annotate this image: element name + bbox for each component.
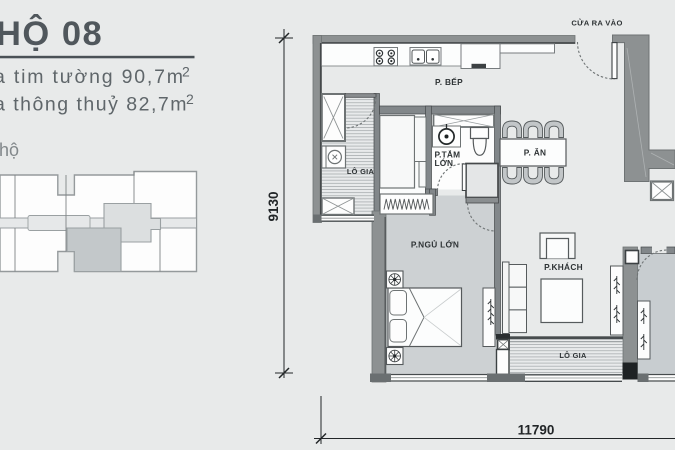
svg-text:9130: 9130 <box>266 191 281 221</box>
svg-text:LÔ GIA: LÔ GIA <box>559 351 587 360</box>
svg-text:P.NGỦ LỚN: P.NGỦ LỚN <box>411 239 459 250</box>
svg-text:2: 2 <box>186 91 194 107</box>
svg-text:CỬA RA VÀO: CỬA RA VÀO <box>571 19 622 28</box>
svg-text:P. ĂN: P. ĂN <box>524 148 547 158</box>
svg-text:11790: 11790 <box>518 423 555 438</box>
svg-text:HỘ 08: HỘ 08 <box>0 13 103 53</box>
svg-text:a thông thuỷ 82,7m: a thông thuỷ 82,7m <box>0 94 188 116</box>
svg-text:a tim tường 90,7m: a tim tường 90,7m <box>0 66 185 88</box>
svg-text:P.KHÁCH: P.KHÁCH <box>544 262 583 272</box>
svg-text:2: 2 <box>182 64 190 80</box>
svg-text:LÔ GIA: LÔ GIA <box>347 167 375 176</box>
svg-text:P. BẾP: P. BẾP <box>435 77 463 87</box>
svg-text:hộ: hộ <box>0 140 19 160</box>
svg-text:LỚN: LỚN <box>435 157 454 168</box>
